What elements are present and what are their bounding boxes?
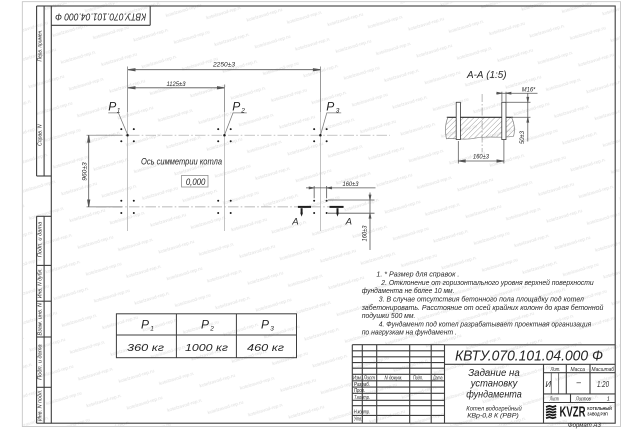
svg-text:Листов: Листов [575,397,591,403]
svg-text:КВТУ.070.101.04.000 Ф: КВТУ.070.101.04.000 Ф [455,348,603,364]
svg-text:Ось симметрии котла: Ось симметрии котла [141,157,222,167]
svg-text:Подп. и дата: Подп. и дата [37,344,43,380]
svg-text:160±3: 160±3 [473,154,489,161]
svg-text:1125±3: 1125±3 [167,81,186,88]
svg-text:4. Фундамент под котел разраба: 4. Фундамент под котел разрабатывает про… [379,320,592,328]
svg-text:3: 3 [336,108,340,115]
svg-text:забетонировать. Расстояние от: забетонировать. Расстояние от осей крайн… [361,304,604,312]
svg-text:М16*: М16* [522,86,536,93]
svg-text:Лист: Лист [363,375,376,381]
svg-text:А: А [291,217,298,228]
svg-text:1. * Размер для справок .: 1. * Размер для справок . [376,271,459,279]
svg-text:Разраб.: Разраб. [354,382,370,388]
svg-text:Утв.: Утв. [353,417,362,423]
svg-text:Дата: Дата [432,375,442,381]
svg-text:Р: Р [108,99,116,113]
svg-text:2. Отклонение от горизонтально: 2. Отклонение от горизонтального уровня … [380,279,593,287]
svg-text:960±3: 960±3 [81,162,88,181]
svg-text:Инв. N подл.: Инв. N подл. [37,390,43,422]
svg-text:Масштаб: Масштаб [592,367,615,373]
svg-text:KVZR: KVZR [560,404,586,421]
svg-text:Т.контр.: Т.контр. [354,395,370,401]
svg-text:460 кг: 460 кг [247,342,284,354]
svg-text:Справ. N: Справ. N [37,124,43,146]
svg-text:Изм.: Изм. [353,375,362,381]
svg-text:фундамента: фундамента [466,389,522,401]
svg-text:Взам. инв. N: Взам. инв. N [37,302,43,335]
svg-text:Инв. N дубл.: Инв. N дубл. [37,268,43,298]
svg-text:А-А (1:5): А-А (1:5) [466,70,506,81]
svg-text:Масса: Масса [571,367,586,373]
svg-text:1:20: 1:20 [597,379,609,389]
svg-text:Р: Р [326,99,334,113]
svg-text:3: 3 [270,325,274,332]
svg-text:160±3: 160±3 [343,181,359,188]
svg-text:фундамента не более 10 мм.: фундамента не более 10 мм. [362,287,455,295]
svg-text:N докум.: N докум. [385,375,403,381]
svg-text:А: А [345,217,352,228]
svg-text:КВТУ.070.101.04.000 Ф: КВТУ.070.101.04.000 Ф [55,10,146,21]
svg-text:Р: Р [261,317,269,331]
svg-text:Р: Р [141,317,149,331]
svg-text:Р: Р [201,317,209,331]
svg-text:1000 кг: 1000 кг [185,342,228,354]
svg-text:2: 2 [209,325,214,332]
svg-text:Формат А3: Формат А3 [568,422,602,429]
svg-text:КОТЕЛЬНЫЙ: КОТЕЛЬНЫЙ [587,404,612,411]
svg-text:Подп.: Подп. [413,375,423,381]
svg-text:1: 1 [607,397,610,403]
svg-text:КВр-0,8 К (РВР): КВр-0,8 К (РВР) [467,412,519,419]
svg-text:И: И [545,380,551,389]
svg-text:ЗАВОД РЭП: ЗАВОД РЭП [587,412,608,417]
svg-text:2250±3: 2250±3 [212,62,235,69]
svg-text:Перв. примен.: Перв. примен. [37,30,43,62]
svg-text:Р: Р [232,99,240,113]
svg-text:160±3: 160±3 [361,225,368,241]
svg-text:–: – [576,378,582,387]
svg-text:360 кг: 360 кг [127,342,164,354]
svg-text:1: 1 [150,325,154,332]
svg-text:Лит.: Лит. [550,367,561,373]
svg-text:50±3: 50±3 [519,131,526,144]
svg-text:2: 2 [240,108,245,115]
svg-text:по нагрузкам на фундамент .: по нагрузкам на фундамент . [362,329,457,337]
svg-text:подушки 500 мм.: подушки 500 мм. [362,312,416,320]
svg-text:Лист: Лист [549,397,559,403]
svg-text:Н.контр.: Н.контр. [354,410,370,416]
svg-text:Подп. и дата: Подп. и дата [37,222,43,258]
svg-text:3. В случае отсутствия бетонно: 3. В случае отсутствия бетонного пола пл… [379,296,584,304]
svg-text:0,000: 0,000 [186,177,206,187]
svg-text:Пров.: Пров. [354,388,365,394]
